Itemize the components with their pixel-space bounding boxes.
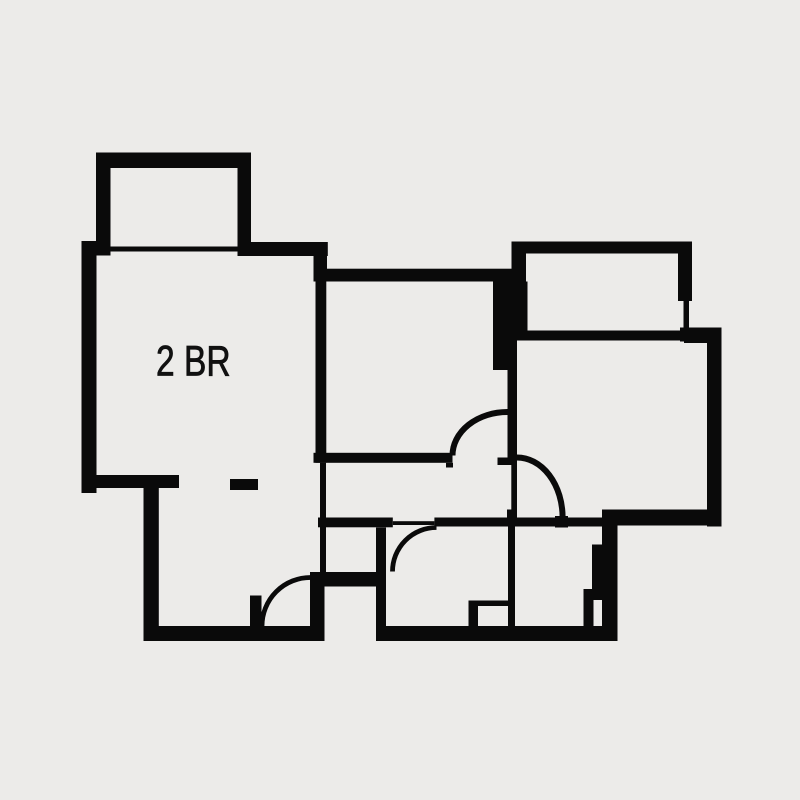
svg-text:2 BR: 2 BR <box>156 338 231 386</box>
